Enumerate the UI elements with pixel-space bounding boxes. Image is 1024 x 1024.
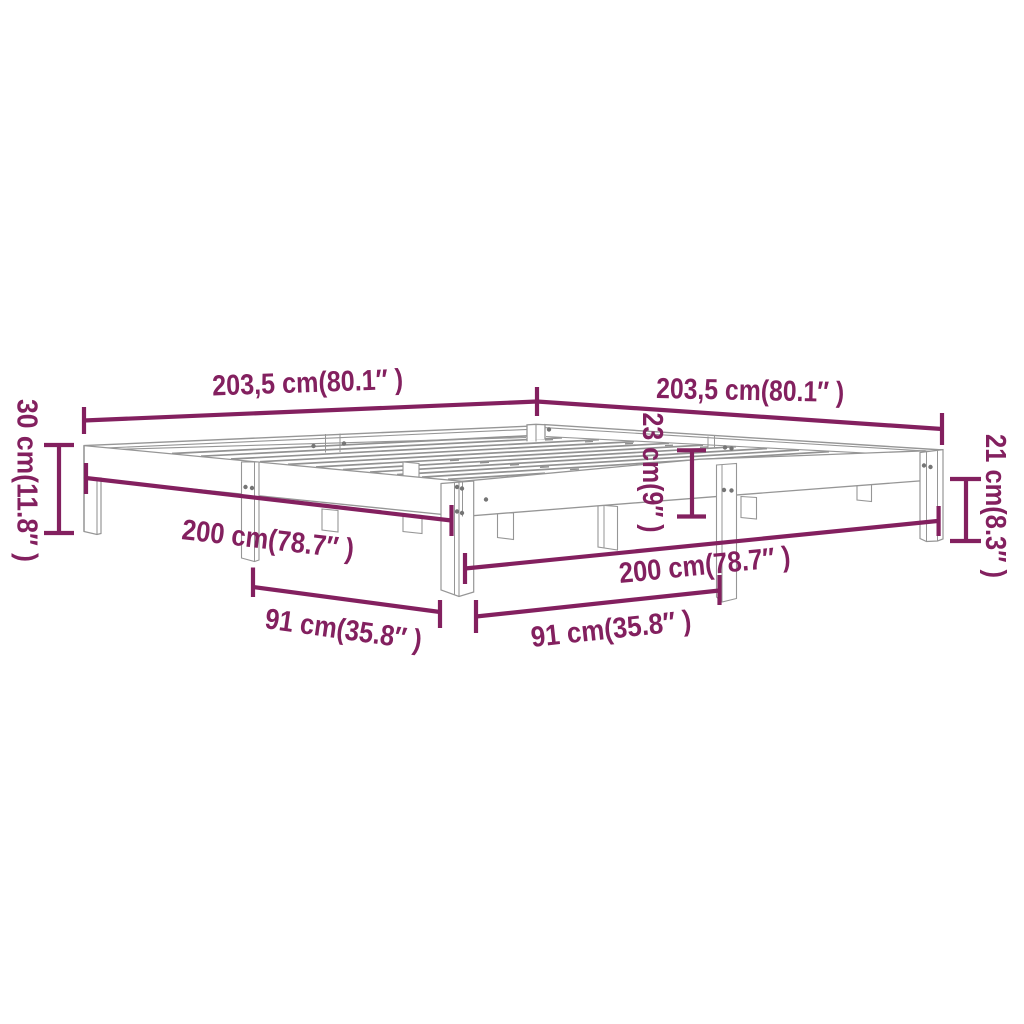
svg-text:21 cm(8.3″ ): 21 cm(8.3″ ) bbox=[979, 434, 1011, 578]
svg-text:203,5 cm(80.1″ ): 203,5 cm(80.1″ ) bbox=[212, 364, 404, 403]
svg-text:23 cm(9″ ): 23 cm(9″ ) bbox=[636, 413, 668, 533]
svg-text:200 cm(78.7″ ): 200 cm(78.7″ ) bbox=[618, 541, 792, 590]
svg-text:91 cm(35.8″ ): 91 cm(35.8″ ) bbox=[529, 605, 692, 654]
svg-text:30 cm(11.8″ ): 30 cm(11.8″ ) bbox=[11, 399, 43, 562]
svg-text:91 cm(35.8″ ): 91 cm(35.8″ ) bbox=[263, 603, 424, 657]
svg-text:203,5 cm(80.1″ ): 203,5 cm(80.1″ ) bbox=[656, 373, 845, 409]
